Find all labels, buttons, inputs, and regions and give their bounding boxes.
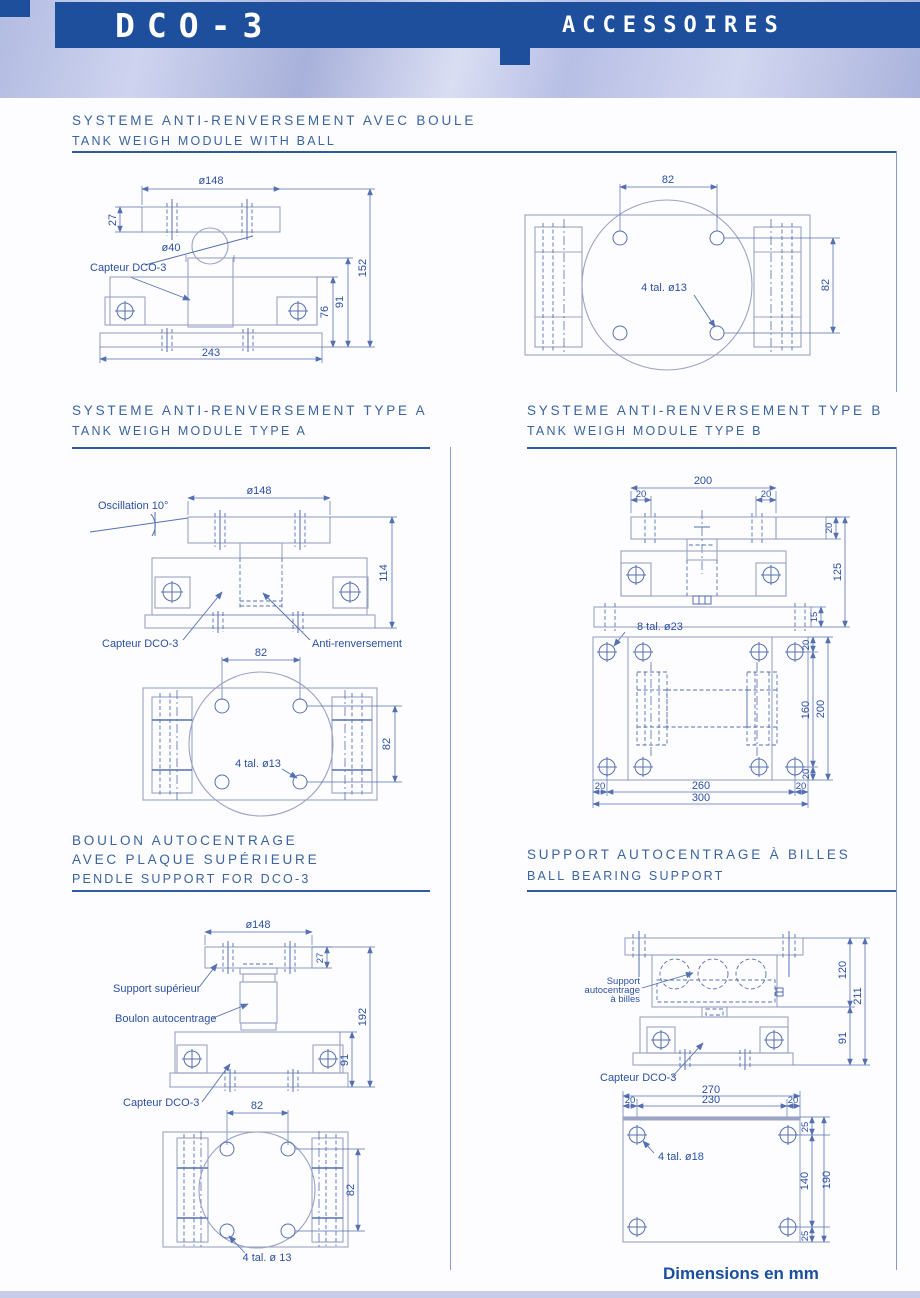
load-cell-body [175,1032,340,1073]
dim-211: 211 [793,938,870,1065]
dim-label: 91 [334,296,346,308]
bolt-assembly-right [754,219,801,355]
type-a-top-drawing: 82 82 4 tal. ø13 [130,650,420,835]
dim-label: 152 [357,259,369,277]
dim-dia148: ø148 [188,485,330,515]
screw-symbol [778,1217,798,1237]
base-plate [100,333,322,347]
type-b-top-drawing: 8 tal. ø23 20 160 20 200 20 [585,618,860,818]
holes-leader [282,769,297,778]
pendle-top-drawing: 82 82 4 tal. ø 13 [150,1105,410,1270]
centering-bolt [240,982,277,1023]
frame-right-s1 [896,151,897,392]
top-plate [625,938,803,955]
screw-symbol [627,1217,647,1237]
top-plate [631,517,776,539]
section3b-title-fr: SUPPORT AUTOCENTRAGE À BILLES [527,847,851,862]
section1-title-fr: SYSTEME ANTI-RENVERSEMENT AVEC BOULE [72,113,476,128]
corner-accent [0,0,30,17]
dim-label: 125 [832,563,844,581]
section2a-rule [72,447,430,449]
dim-label: ø148 [246,485,271,497]
section3a-title-fr2: AVEC PLAQUE SUPÉRIEURE [72,852,319,867]
dim-label: 140 [799,1172,811,1190]
dim-20-right: 20 [756,489,776,517]
screw-symbol-left [161,581,183,603]
bolt-collar [240,968,277,974]
pendle-side-drawing: ø148 27 Support supérieur Boulon autocen… [100,920,400,1115]
dim-label: 20 [595,781,606,792]
ball-module-side-drawing: ø148 27 ø40 Capteur DCO-3 76 91 152 243 [85,165,395,370]
dim-76: 76 [317,277,338,347]
base-plate [633,1053,793,1065]
dims-right: 25 140 25 190 [796,1117,833,1242]
holes-label: 8 tal. ø23 [637,621,683,633]
dim-label: 211 [852,987,864,1005]
dim-200: 200 [631,475,776,513]
holes-leader [229,1236,245,1253]
dim-label: 200 [815,700,827,718]
section1-title-en: TANK WEIGH MODULE WITH BALL [72,134,336,148]
support-billes-leader [642,973,693,988]
dim-label: 91 [339,1054,351,1066]
section3b-rule [527,890,896,892]
dim-label: 200 [694,475,712,487]
dim-label: 25 [800,1122,811,1133]
capteur-label: Capteur DCO-3 [102,638,178,650]
dim-label: 91 [837,1032,849,1044]
dim-82-h: 82 [620,174,717,231]
section3a-title-fr1: BOULON AUTOCENTRAGE [72,833,297,848]
load-cell-column [188,258,233,327]
dim-82-h: 82 [227,1100,288,1145]
bottom-edge-strip [0,1291,920,1298]
load-cell-body [621,551,786,596]
dim-label: 243 [202,347,220,359]
anti-label: Anti-renversement [312,638,402,650]
top-plate-circle [199,1132,315,1248]
bolt-assembly-left [177,1131,208,1249]
screw-symbol-left [651,1030,671,1050]
screw-symbol-right [761,565,781,585]
dim-label: 120 [837,961,849,979]
dim-label: ø148 [198,175,223,187]
section1-rule [72,151,896,153]
dim-20-left: 20 [631,489,651,517]
dim-label: 27 [315,953,326,964]
bolt-assembly-left [535,219,582,355]
dim-91: 91 [233,258,375,347]
load-cell-body [110,277,317,325]
dim-label: 82 [255,647,267,659]
screw-symbol-right [339,581,361,603]
dim-label: ø148 [245,919,270,931]
dim-label: 114 [378,564,390,582]
dim-label: 230 [702,1094,720,1106]
dim-152: 152 [357,189,370,347]
dim-label: 260 [692,780,710,792]
ball-bearing-side-drawing: Support autocentrage à billes 120 211 91… [595,930,885,1090]
dim-label: 82 [345,1184,357,1196]
screw-symbol-left [626,565,646,585]
dimensions-note: Dimensions en mm [663,1264,819,1284]
holes-leader [694,295,715,327]
capteur-label: Capteur DCO-3 [600,1072,676,1084]
bolt-assembly-left [152,690,192,800]
ball-module-top-drawing: 82 82 4 tal. ø13 [518,175,848,375]
holes-leader [614,632,625,646]
screw-symbol-right [288,301,308,321]
bolt-cup [243,974,275,982]
bearing-ball [698,959,728,989]
holes-label: 4 tal. ø13 [235,758,281,770]
top-plate [205,947,312,968]
anti-leader [263,593,310,640]
boulon-label: Boulon autocentrage [115,1013,217,1025]
holes-leader [643,1141,654,1153]
dim-dia40: ø40 [162,242,181,254]
plate-side-projection [776,517,826,539]
dim-label: 300 [692,792,710,804]
stem-nut [693,596,711,604]
dim-label: 190 [821,1171,833,1189]
dim-label: 82 [251,1100,263,1112]
capteur-leader [202,1064,230,1102]
dim-label: 82 [662,174,674,186]
base-plate-top [593,637,808,780]
section2a-title-en: TANK WEIGH MODULE TYPE A [72,424,307,438]
dim-label: 20 [625,1095,636,1106]
dim-230-row: 20 230 20 [623,1094,800,1117]
capteur-leader [183,592,222,640]
bearing-ball [736,959,766,989]
dim-label: 20 [636,489,647,500]
dim-label: 20 [801,769,812,780]
screw-symbol-left [182,1049,202,1069]
dims-right: 20 160 20 200 [800,637,833,780]
dim-label: 192 [357,1008,369,1026]
load-cell-body [152,558,367,615]
section2b-title-fr: SYSTEME ANTI-RENVERSEMENT TYPE B [527,403,883,418]
top-plate [188,517,330,543]
dim-label: 25 [800,1231,811,1242]
base-plate-top [143,688,377,800]
band-accent-square [500,48,530,65]
base-plate [170,1073,348,1087]
bolt-assembly-right [332,690,372,800]
base-plate [145,615,375,628]
ball-bearing-top-drawing: 270 20 230 20 4 tal. ø18 25 140 25 190 [610,1085,900,1250]
support-sup-label: Support supérieur [113,983,201,995]
bearing-ball [660,959,690,989]
type-a-side-drawing: Oscillation 10° ø148 114 Capteur DCO-3 A… [85,470,415,655]
oscillation-label: Oscillation 10° [98,500,168,512]
base-plate-top [623,1117,800,1242]
holes-label: 4 tal. ø13 [641,282,687,294]
frame-divider [450,447,451,1270]
dim-label: 160 [800,701,812,719]
boulon-leader [213,1004,248,1018]
section2a-title-fr: SYSTEME ANTI-RENVERSEMENT TYPE A [72,403,427,418]
screw-symbol-right [764,1030,784,1050]
top-plate-circle [189,672,333,816]
ball [192,228,228,264]
dim-91: 91 [837,1007,850,1065]
bolt-flange [241,1023,276,1030]
dim-label: 76 [319,306,331,318]
section3b-title-en: BALL BEARING SUPPORT [527,869,725,883]
dim-243: 243 [100,347,322,363]
dim-82-h: 82 [222,647,300,700]
product-title: DCO-3 [115,6,274,45]
dim-label: 20 [801,640,812,651]
dim-27: 27 [312,947,332,968]
dim-label: 27 [107,214,119,226]
dim-label: 20 [796,781,807,792]
screw-symbol [778,1125,798,1145]
oscillation-line [90,518,188,532]
ball-bearing-box [652,955,777,1007]
section2b-title-en: TANK WEIGH MODULE TYPE B [527,424,763,438]
hidden-sensor [637,672,777,745]
support-billes-label-3: à billes [610,994,640,1005]
dim-label: 20 [788,1095,799,1106]
holes-label: 4 tal. ø18 [658,1151,704,1163]
dim-dia148: ø148 [142,175,375,205]
dim-27: 27 [107,207,142,232]
stem-hidden [706,1009,723,1015]
anti-tip-stem [240,543,282,558]
holes-label: 4 tal. ø 13 [243,1252,292,1264]
page-title: ACCESSOIRES [562,13,785,38]
dim-label: 20 [761,489,772,500]
dim-114: 114 [330,517,397,628]
section3a-title-en: PENDLE SUPPORT FOR DCO-3 [72,872,311,886]
capteur-label: Capteur DCO-3 [90,262,166,274]
screw-symbol-left [115,301,135,321]
bearing-cage-hidden [657,980,775,1002]
capteur-leader [672,1043,703,1077]
section2b-rule [527,447,896,449]
dim-label: 82 [381,738,393,750]
dim-label: 82 [820,279,832,291]
dim-label: 20 [824,523,835,534]
section3a-rule [72,890,430,892]
dim-dia148: ø148 [205,919,312,945]
support-sup-leader [200,964,217,986]
type-b-side-drawing: 200 20 20 20 15 125 [560,470,900,635]
screw-symbol-right [318,1049,338,1069]
